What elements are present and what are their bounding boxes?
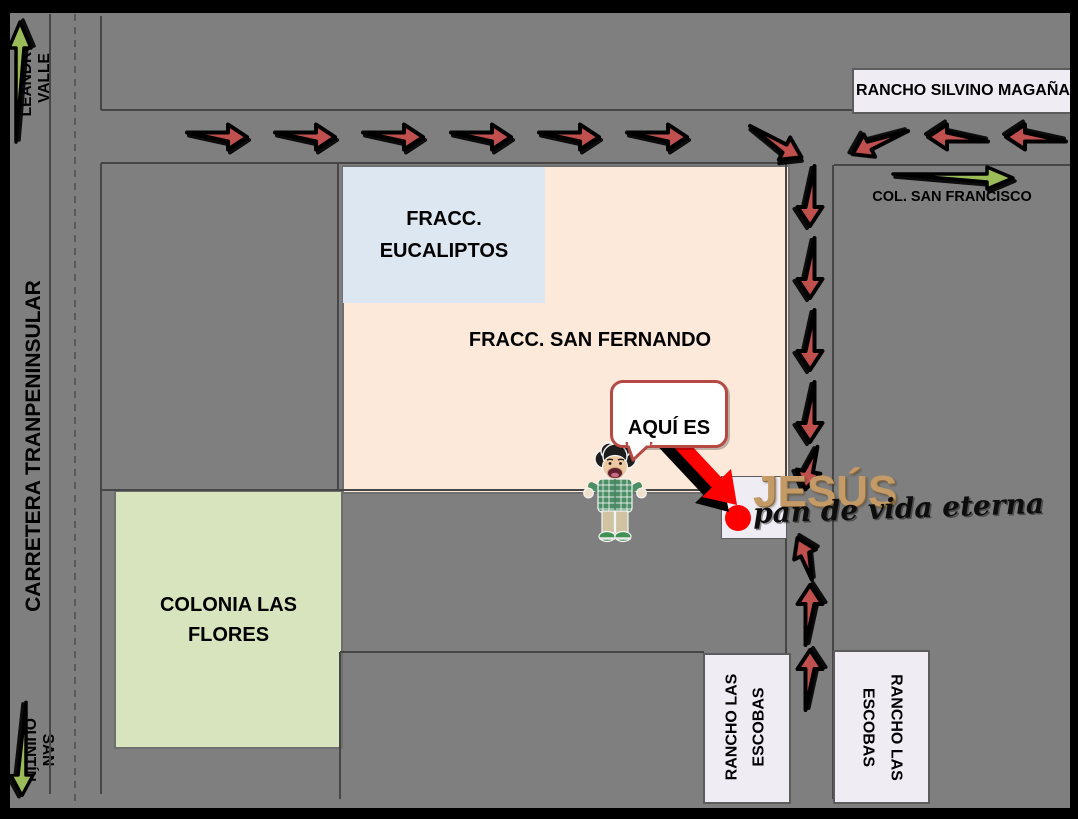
rancho-las-escobas-right-text: RANCHO LAS ESCOBAS: [835, 652, 928, 802]
route-arrow-turn-down-icon: [742, 119, 807, 169]
label-carretera-tranpeninsular: CARRETERA TRANPENINSULAR: [22, 268, 46, 624]
destination-dot: [725, 505, 751, 531]
map-canvas: FRACC. SAN FERNANDO FRACC. EUCALIPTOS CO…: [0, 0, 1078, 819]
route-arrow-right-icon: [363, 125, 423, 150]
san-quintin-text: SAN QUINTÍN: [29, 700, 47, 800]
route-arrow-left-icon: [928, 125, 988, 150]
leandro-valle-text: LEANDRO VALLE: [27, 14, 45, 142]
route-arrow-right-icon: [539, 125, 599, 150]
route-arrow-left-icon: [1006, 125, 1066, 150]
region-colonia-las-flores: COLONIA LAS FLORES: [114, 490, 343, 749]
aqui-es-text: AQUÍ ES: [628, 417, 710, 440]
label-rancho-las-escobas-left: RANCHO LAS ESCOBAS: [703, 653, 791, 804]
carretera-text: CARRETERA TRANPENINSULAR: [22, 268, 46, 624]
route-arrow-down-icon: [798, 382, 823, 442]
route-arrow-up-icon: [787, 533, 827, 583]
label-leandro-valle: LEANDRO VALLE: [27, 14, 45, 142]
route-arrow-down-icon: [798, 166, 823, 226]
route-arrow-right-icon: [451, 125, 511, 150]
speech-bubble-tail: [623, 442, 655, 462]
label-rancho-las-escobas-right: RANCHO LAS ESCOBAS: [833, 650, 930, 804]
label-rancho-silvino-magana: RANCHO SILVINO MAGAÑA: [852, 68, 1074, 114]
route-arrow-right-icon: [275, 125, 335, 150]
route-arrow-up-icon: [798, 585, 823, 645]
label-san-quintin: SAN QUINTÍN: [29, 700, 47, 800]
route-arrow-right-icon: [187, 125, 247, 150]
route-arrow-down-icon: [798, 238, 823, 298]
route-arrow-right-icon: [627, 125, 687, 150]
col-san-francisco-arrow-right-icon: [893, 167, 1013, 189]
route-arrow-up-icon: [798, 650, 823, 710]
label-col-san-francisco: COL. SAN FRANCISCO: [866, 189, 1038, 205]
logo-jesus-pan-de-vida: JESÚS pan de vida eterna: [753, 470, 1044, 528]
rancho-las-escobas-left-text: RANCHO LAS ESCOBAS: [703, 653, 787, 800]
region-fracc-eucaliptos: FRACC. EUCALIPTOS: [343, 167, 545, 303]
speech-bubble-aqui-es: AQUÍ ES: [610, 380, 728, 448]
logo-subtitle: pan de vida eterna: [753, 490, 1045, 528]
route-arrow-turn-down-icon: [847, 116, 912, 166]
region-fracc-san-fernando-label: FRACC. SAN FERNANDO: [450, 329, 730, 352]
route-arrow-down-icon: [798, 310, 823, 370]
